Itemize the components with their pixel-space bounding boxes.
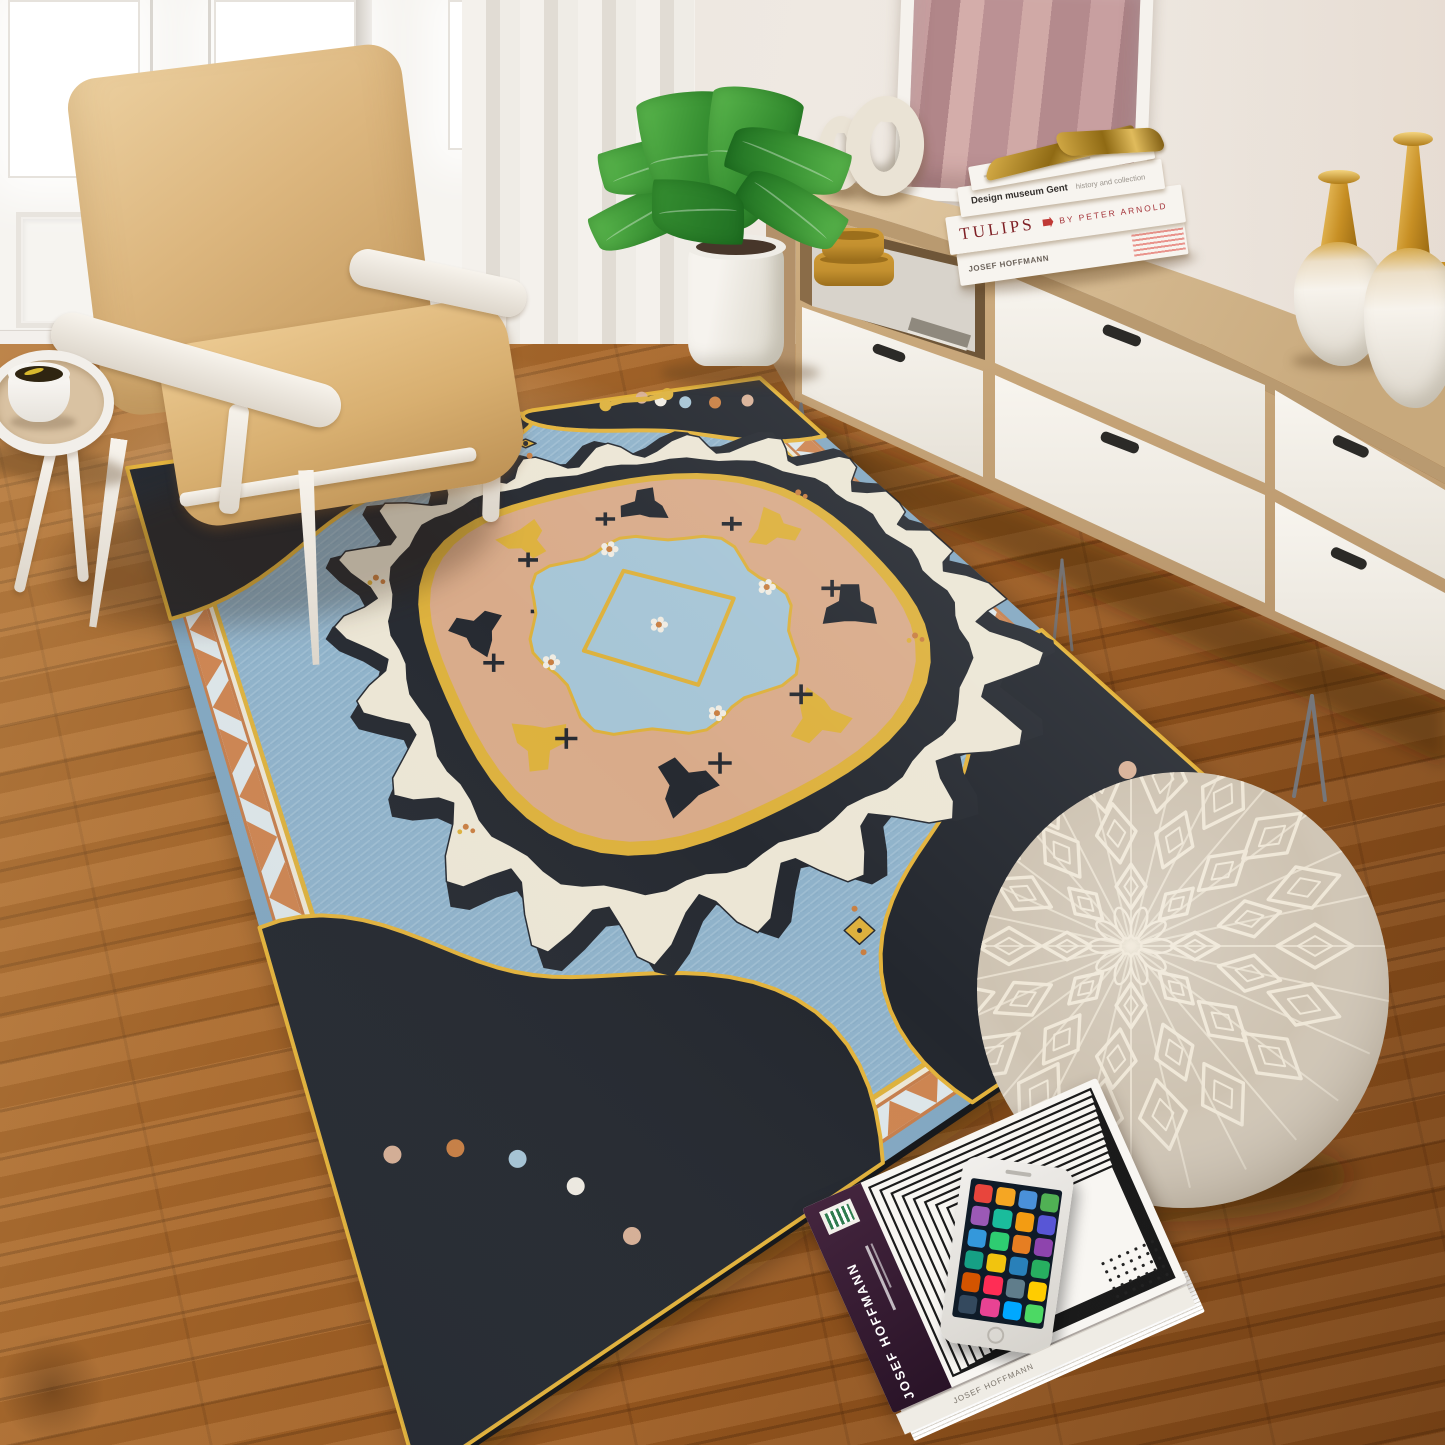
phone-screen — [952, 1178, 1063, 1329]
app-icon — [970, 1206, 991, 1227]
app-icon — [1027, 1281, 1048, 1302]
book-author: BY PETER ARNOLD — [1059, 201, 1169, 226]
potted-plant — [590, 88, 830, 398]
app-icon — [958, 1294, 979, 1315]
app-icon — [1024, 1303, 1045, 1324]
app-icon — [1005, 1278, 1026, 1299]
publisher-logo — [819, 1198, 860, 1235]
app-icon — [967, 1228, 988, 1249]
phone-speaker — [1005, 1170, 1031, 1178]
app-icon — [1011, 1234, 1032, 1255]
app-icon — [992, 1209, 1013, 1230]
app-icon — [983, 1275, 1004, 1296]
tulip-arrow-icon — [1042, 216, 1054, 228]
app-icon — [1030, 1259, 1051, 1280]
app-icon — [980, 1297, 1001, 1318]
app-icon — [989, 1231, 1010, 1252]
book-spine-title: JOSEF HOFFMANN — [968, 253, 1050, 273]
book-subtitle: history and collection — [1075, 172, 1146, 191]
vase-tall-lip — [1393, 132, 1433, 146]
vase-small-lip — [1318, 170, 1360, 184]
app-icon — [1036, 1215, 1057, 1236]
app-icon — [1017, 1190, 1038, 1211]
app-icon — [961, 1272, 982, 1293]
app-icon — [964, 1250, 985, 1271]
plant-pot — [688, 244, 784, 366]
app-icon — [1033, 1237, 1054, 1258]
app-icon — [986, 1253, 1007, 1274]
app-icon — [1014, 1212, 1035, 1233]
book-fore-edge — [1131, 227, 1186, 256]
app-icon — [995, 1187, 1016, 1208]
living-room-rug-photo: JOSEF HOFFMANN TULIPS BY PETER ARNOLD De… — [0, 0, 1445, 1445]
phone-home-button — [986, 1326, 1005, 1345]
app-icon — [1008, 1256, 1029, 1277]
app-icon — [1002, 1300, 1023, 1321]
side-table — [0, 348, 134, 648]
app-icon — [1039, 1193, 1060, 1214]
app-icon — [973, 1183, 994, 1204]
book-title: TULIPS — [958, 214, 1036, 244]
